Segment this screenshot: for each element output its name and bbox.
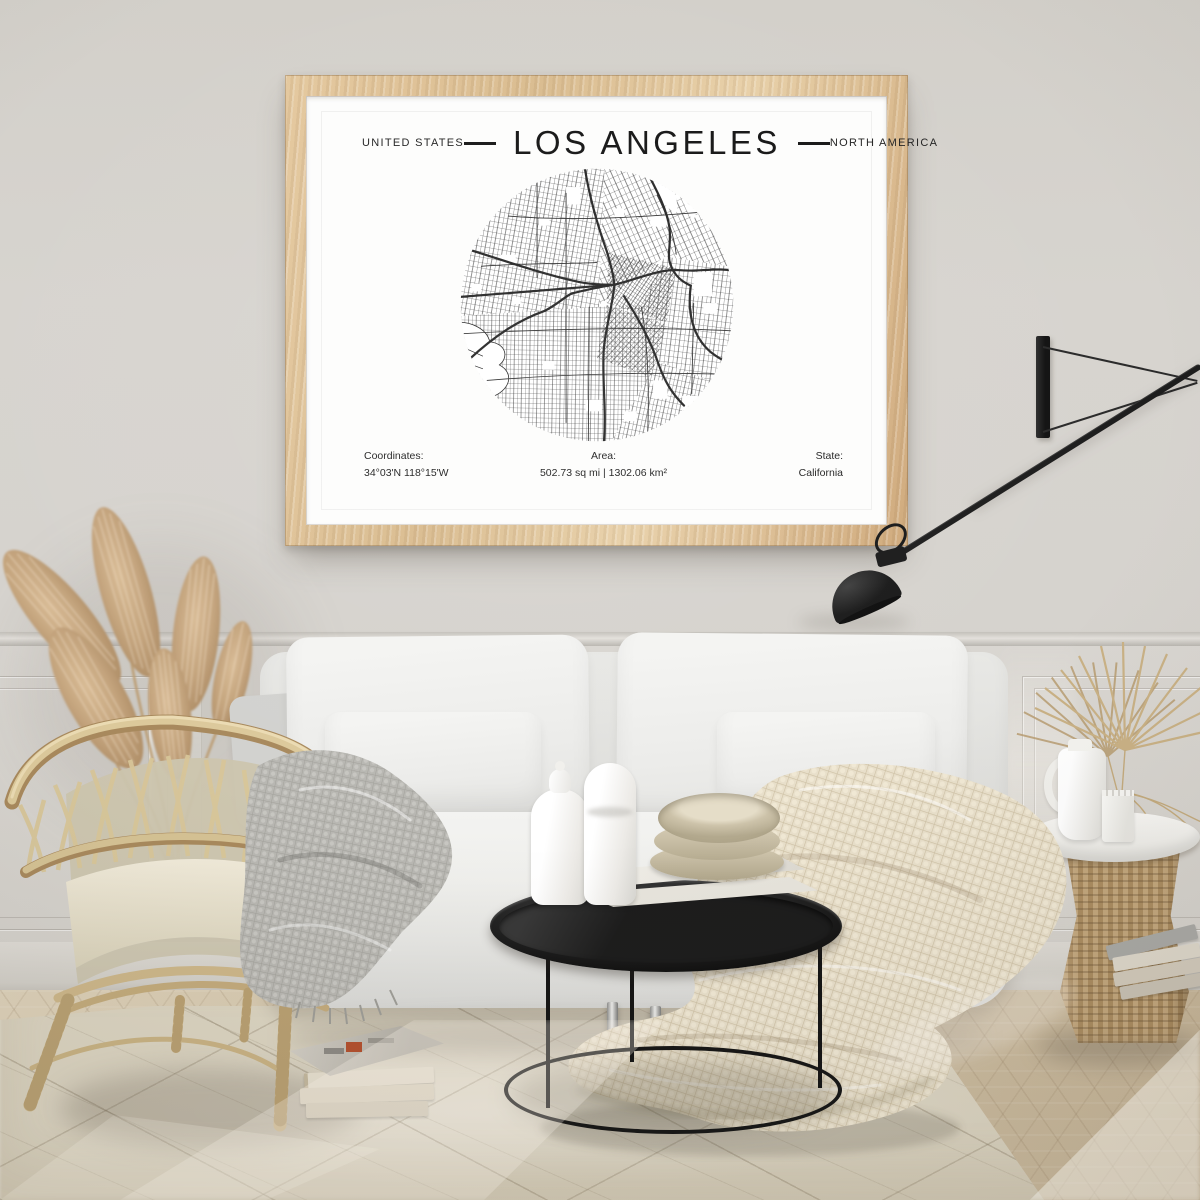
living-room-photo: UNITED STATES LOS ANGELES NORTH AMERICA xyxy=(0,0,1200,1200)
ceramic-bowl xyxy=(658,793,780,843)
coffee-table-leg xyxy=(546,938,550,1108)
white-vase xyxy=(584,763,636,905)
bottle-vase-cap xyxy=(549,769,571,793)
coffee-table-leg xyxy=(818,932,822,1088)
coffee-table xyxy=(480,760,870,1150)
coffee-table-base-hoop xyxy=(504,1046,842,1134)
bottle-vase-knob xyxy=(555,761,565,771)
bottle-vase xyxy=(531,789,589,905)
